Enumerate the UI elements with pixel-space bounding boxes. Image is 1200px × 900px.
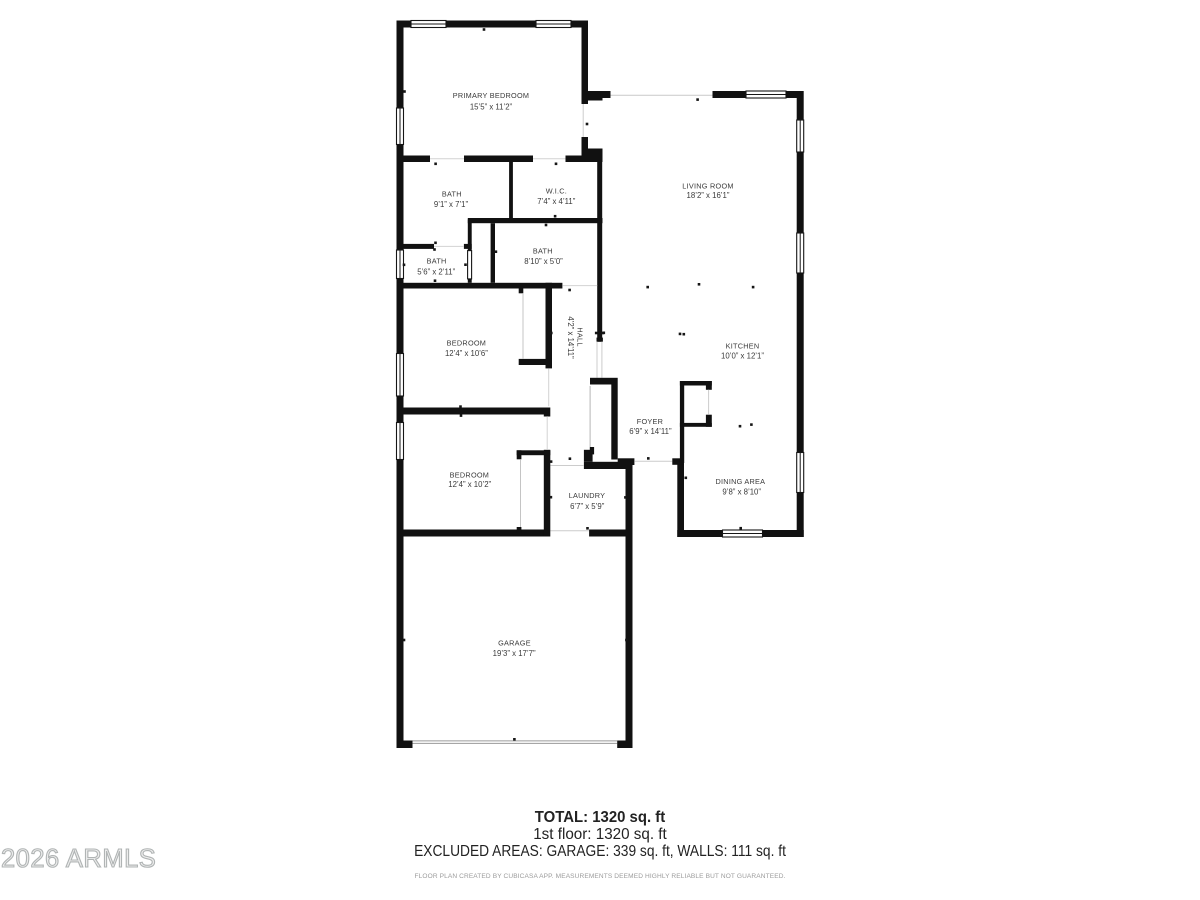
svg-text:12’4” x 10’6”: 12’4” x 10’6” (445, 349, 488, 358)
svg-text:5’6” x 2’11”: 5’6” x 2’11” (417, 267, 455, 276)
svg-text:6’7” x 5’9”: 6’7” x 5’9” (570, 502, 605, 511)
svg-text:W.I.C.: W.I.C. (546, 187, 567, 196)
svg-text:4’2” x 14’11”: 4’2” x 14’11” (566, 316, 575, 359)
svg-text:BEDROOM: BEDROOM (450, 471, 489, 480)
svg-text:HALL: HALL (576, 327, 585, 346)
svg-text:19’3” x 17’7”: 19’3” x 17’7” (493, 649, 536, 658)
svg-text:LIVING ROOM: LIVING ROOM (682, 182, 733, 191)
svg-text:BATH: BATH (427, 256, 447, 265)
svg-text:9’1” x 7’1”: 9’1” x 7’1” (434, 200, 469, 209)
svg-text:BATH: BATH (442, 190, 462, 199)
svg-text:BATH: BATH (533, 247, 553, 256)
svg-text:KITCHEN: KITCHEN (726, 341, 760, 350)
svg-text:9’8” x 8’10”: 9’8” x 8’10” (722, 488, 761, 497)
svg-text:LAUNDRY: LAUNDRY (569, 491, 606, 500)
svg-text:15’5” x 11’2”: 15’5” x 11’2” (470, 103, 513, 112)
svg-text:6’9” x 14’11”: 6’9” x 14’11” (629, 427, 672, 436)
svg-text:PRIMARY BEDROOM: PRIMARY BEDROOM (453, 91, 529, 100)
svg-text:10’0” x 12’1”: 10’0” x 12’1” (721, 352, 764, 361)
svg-text:7’4” x 4’11”: 7’4” x 4’11” (537, 197, 575, 206)
svg-text:18’2” x 16’1”: 18’2” x 16’1” (687, 191, 730, 200)
svg-text:BEDROOM: BEDROOM (447, 339, 486, 348)
svg-text:12’4” x 10’2”: 12’4” x 10’2” (448, 480, 491, 489)
svg-text:GARAGE: GARAGE (498, 638, 531, 647)
svg-text:FOYER: FOYER (637, 417, 663, 426)
svg-text:DINING AREA: DINING AREA (716, 477, 766, 486)
svg-text:8’10” x 5’0”: 8’10” x 5’0” (524, 257, 563, 266)
